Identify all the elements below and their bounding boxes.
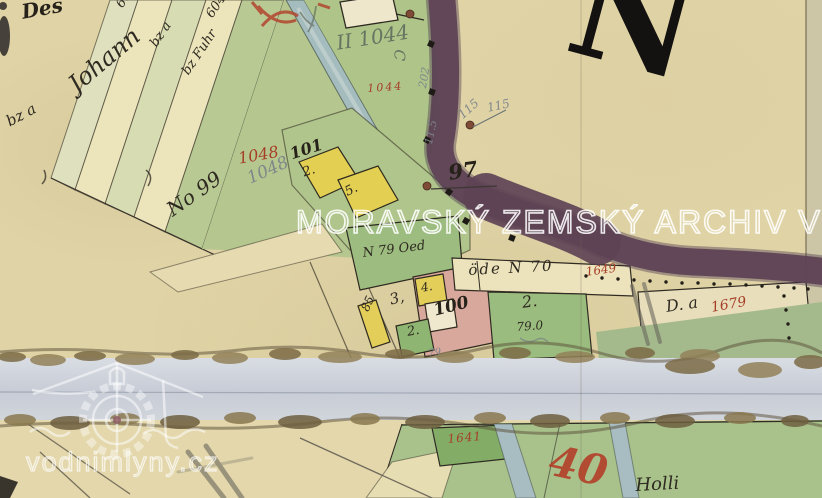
- map-scan-viewport[interactable]: N MORAVSKÝ ZEMSKÝ ARCHIV V BRN vodnimlyn…: [0, 0, 822, 498]
- parcel-number-red-1044: 1044: [367, 80, 404, 93]
- site-watermark: vodnimlyny.cz: [26, 447, 220, 478]
- label-ode-n70: öde N 70: [468, 259, 554, 278]
- handwriting-holli: Holli: [635, 475, 680, 495]
- label-d-a: D. a: [665, 295, 699, 315]
- pencil-label-c: C: [391, 49, 407, 62]
- quality-mark-2-c: 2.: [521, 293, 538, 311]
- red-figure-40: 40: [545, 440, 611, 493]
- label-79-0: 79.0: [516, 319, 543, 333]
- house-number-97: 97: [447, 158, 479, 183]
- pencil-label-202: 202: [417, 66, 431, 89]
- quality-mark-2-small: 2.: [406, 324, 420, 339]
- pencil-label-79: 79: [428, 348, 442, 359]
- archive-watermark: MORAVSKÝ ZEMSKÝ ARCHIV V BRN: [296, 204, 822, 241]
- parcel-number-red-1641: 1641: [447, 430, 482, 445]
- page-blemishes: [0, 2, 10, 56]
- quality-mark-4: 4.: [420, 280, 433, 294]
